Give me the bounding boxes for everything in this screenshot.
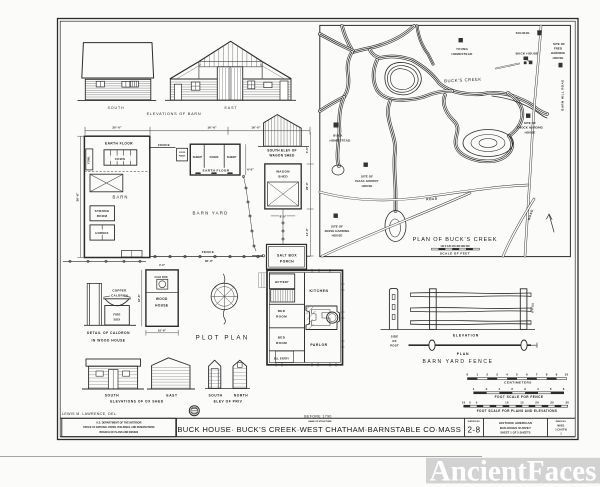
svg-text:SITE OF: SITE OF — [331, 224, 343, 228]
svg-text:EARTH FLOOR: EARTH FLOOR — [203, 169, 230, 173]
svg-text:10: 10 — [462, 401, 466, 405]
svg-text:BED: BED — [278, 336, 286, 340]
svg-text:SITE OF: SITE OF — [524, 121, 536, 125]
svg-text:ELEV OF PRIV: ELEV OF PRIV — [214, 400, 243, 404]
svg-text:HOUSE: HOUSE — [362, 184, 373, 188]
svg-text:7: 7 — [536, 373, 538, 377]
svg-text:14′-0″: 14′-0″ — [305, 227, 309, 236]
svg-text:AncientFaces: AncientFaces — [430, 455, 597, 487]
svg-text:OFFICE OF NATIONAL PARKS, BUIL: OFFICE OF NATIONAL PARKS, BUILDINGS, AND… — [83, 426, 155, 429]
svg-text:SHED: SHED — [278, 175, 288, 179]
svg-text:MASS.: MASS. — [557, 424, 565, 427]
svg-text:POST: POST — [390, 344, 399, 348]
svg-text:ELEVATIONS OF OX SHED: ELEVATIONS OF OX SHED — [110, 400, 163, 404]
svg-text:0: 0 — [467, 373, 469, 377]
svg-text:CALD RON: CALD RON — [155, 276, 168, 279]
svg-text:4: 4 — [537, 387, 539, 391]
svg-text:5: 5 — [516, 373, 518, 377]
svg-text:HOUSE: HOUSE — [332, 234, 343, 238]
svg-text:15: 15 — [520, 401, 524, 405]
svg-text:10′-6″: 10′-6″ — [158, 328, 167, 332]
svg-text:0: 0 — [486, 387, 488, 391]
svg-text:BUILDINGS SURVEY: BUILDINGS SURVEY — [500, 426, 531, 430]
svg-text:BARN YARD: BARN YARD — [192, 211, 228, 216]
svg-text:ENOCK HARDING: ENOCK HARDING — [517, 126, 544, 130]
svg-text:6′-0″(±): 6′-0″(±) — [531, 303, 535, 313]
svg-text:OXEN: OXEN — [210, 155, 219, 159]
svg-text:ELEVATION: ELEVATION — [453, 334, 479, 338]
svg-text:2: 2 — [486, 373, 488, 377]
svg-text:ROOM: ROOM — [276, 314, 287, 318]
svg-text:1-CH AT W: 1-CH AT W — [555, 429, 567, 432]
svg-text:PLOT PLAN: PLOT PLAN — [196, 335, 250, 342]
svg-text:3: 3 — [524, 387, 526, 391]
svg-text:28′-0″: 28′-0″ — [305, 181, 309, 190]
svg-text:ELL ENTRY: ELL ENTRY — [274, 356, 289, 360]
svg-text:5: 5 — [550, 387, 552, 391]
svg-text:STRONG: STRONG — [95, 209, 110, 213]
svg-text:SALT BOX: SALT BOX — [277, 253, 297, 257]
svg-text:FOOT SCALE FOR FENCE: FOOT SCALE FOR FENCE — [495, 395, 544, 399]
svg-text:COPPER: COPPER — [112, 289, 127, 293]
svg-text:U.S. DEPARTMENT OF THE INTERIO: U.S. DEPARTMENT OF THE INTERIOR — [96, 421, 141, 424]
svg-text:WOOD: WOOD — [156, 297, 168, 301]
svg-text:30: 30 — [565, 401, 569, 405]
svg-text:FOWL: FOWL — [87, 156, 90, 164]
svg-text:6: 6 — [563, 387, 565, 391]
svg-text:FIRE: FIRE — [113, 313, 120, 317]
svg-text:25: 25 — [550, 401, 554, 405]
svg-text:PORCH: PORCH — [280, 259, 294, 263]
svg-text:PARLOR: PARLOR — [310, 343, 327, 347]
svg-text:16′-6″: 16′-6″ — [137, 293, 141, 302]
svg-text:WAGON: WAGON — [276, 170, 290, 174]
svg-text:HISTORIC AMERICAN: HISTORIC AMERICAN — [499, 421, 532, 425]
svg-text:36′-6″: 36′-6″ — [76, 192, 80, 201]
svg-text:FENCE: FENCE — [158, 143, 170, 147]
svg-text:SOUTH: SOUTH — [107, 106, 124, 110]
svg-text:BARN: BARN — [112, 194, 128, 199]
svg-text:BRANCH OF PLANS AND DESIGN: BRANCH OF PLANS AND DESIGN — [99, 431, 138, 434]
svg-text:CALDRON: CALDRON — [111, 294, 128, 298]
svg-text:SCALE OF FEET: SCALE OF FEET — [440, 251, 470, 255]
svg-text:BEFORE 1790: BEFORE 1790 — [304, 414, 332, 418]
svg-text:3′-0″: 3′-0″ — [305, 146, 309, 153]
svg-text:PLAN: PLAN — [457, 352, 469, 356]
svg-text:SCHOOL: SCHOOL — [516, 31, 531, 35]
svg-text:20: 20 — [535, 401, 539, 405]
svg-text:ROOM: ROOM — [276, 341, 287, 345]
svg-text:DETAIL OF CALDRON: DETAIL OF CALDRON — [87, 331, 130, 335]
svg-text:BARN HILL ROAD: BARN HILL ROAD — [561, 79, 565, 111]
svg-text:ROAD: ROAD — [426, 197, 438, 202]
svg-text:SOUTH: SOUTH — [208, 394, 222, 398]
svg-text:SHEEP: SHEEP — [193, 155, 203, 159]
svg-text:JESSE HARDING: JESSE HARDING — [325, 229, 351, 233]
svg-text:20′-0″: 20′-0″ — [112, 125, 122, 129]
svg-text:PAINT: PAINT — [179, 154, 186, 157]
svg-text:CENTIMETERS: CENTIMETERS — [504, 381, 532, 385]
svg-text:5: 5 — [469, 401, 471, 405]
svg-text:ELEVATIONS OF BARN: ELEVATIONS OF BARN — [147, 112, 202, 116]
svg-text:10: 10 — [565, 373, 569, 377]
svg-text:BARN YARD FENCE: BARN YARD FENCE — [422, 359, 493, 365]
svg-text:16′-0″: 16′-0″ — [251, 125, 261, 129]
svg-text:EAST: EAST — [166, 394, 177, 398]
svg-text:BUCK HOUSE: BUCK HOUSE — [516, 51, 539, 55]
svg-text:10: 10 — [505, 401, 509, 405]
svg-text:SIDE: SIDE — [391, 334, 399, 338]
svg-text:2: 2 — [511, 387, 513, 391]
svg-text:BUCK: BUCK — [333, 134, 343, 138]
svg-text:WAGON SHED: WAGON SHED — [269, 154, 295, 158]
svg-text:6: 6 — [526, 373, 528, 377]
svg-text:1: 1 — [476, 373, 478, 377]
svg-text:FRED: FRED — [554, 47, 562, 51]
svg-text:ROOM: ROOM — [97, 214, 108, 218]
svg-text:6′-0″: 6′-0″ — [247, 168, 254, 172]
svg-text:SITE OF: SITE OF — [361, 175, 373, 179]
svg-text:SITE OF: SITE OF — [553, 42, 565, 46]
svg-text:SOUTH: SOUTH — [105, 394, 120, 398]
svg-text:9: 9 — [556, 373, 558, 377]
svg-text:COVD: COVD — [179, 152, 186, 154]
svg-text:EAST: EAST — [225, 106, 238, 110]
svg-text:1: 1 — [498, 387, 500, 391]
svg-text:2-8: 2-8 — [467, 426, 480, 435]
svg-text:SURVEY NO.: SURVEY NO. — [468, 421, 481, 423]
svg-text:IN WOOD HOUSE: IN WOOD HOUSE — [92, 338, 126, 342]
svg-text:3: 3 — [496, 373, 498, 377]
svg-text:BUTTERY: BUTTERY — [275, 280, 289, 284]
svg-text:LEWIS M. LAWRENCE, DEL.: LEWIS M. LAWRENCE, DEL. — [62, 412, 117, 416]
svg-text:HOMESTEAD: HOMESTEAD — [452, 52, 474, 56]
svg-text:120 0 120 240 360 480 600: 120 0 120 240 360 480 600 — [440, 245, 470, 248]
svg-text:YOUNG: YOUNG — [456, 47, 468, 51]
svg-text:HORSES: HORSES — [95, 231, 108, 235]
svg-text:4′-0″: 4′-0″ — [159, 263, 166, 267]
svg-text:NORTH: NORTH — [234, 394, 248, 398]
svg-text:PLAN OF BUCK’S CREEK: PLAN OF BUCK’S CREEK — [413, 237, 498, 243]
svg-text:BED: BED — [278, 309, 286, 313]
svg-text:HOUSE: HOUSE — [553, 56, 564, 60]
svg-text:SHEEP: SHEEP — [227, 155, 237, 159]
svg-text:ISAAC GODFRY: ISAAC GODFRY — [355, 179, 378, 183]
svg-text:FOOT SCALE FOR PLANS AND ELEVA: FOOT SCALE FOR PLANS AND ELEVATIONS — [477, 409, 558, 413]
svg-text:·BUCK HOUSE· BUCK’S CREEK·WEST: ·BUCK HOUSE· BUCK’S CREEK·WEST CHATHAM·B… — [175, 425, 467, 434]
svg-text:SHEET 1 OF 5 SHEETS: SHEET 1 OF 5 SHEETS — [500, 431, 530, 435]
svg-text:FENCE: FENCE — [202, 250, 215, 254]
svg-text:8: 8 — [546, 373, 548, 377]
svg-text:1: 1 — [473, 387, 475, 391]
svg-text:HOUSE: HOUSE — [155, 304, 168, 308]
svg-text:KITCHEN: KITCHEN — [310, 289, 329, 293]
svg-text:0: 0 — [476, 401, 478, 405]
svg-text:HOUSE: HOUSE — [525, 130, 536, 134]
svg-text:INDEX NO.: INDEX NO. — [556, 421, 567, 423]
svg-text:HARDING: HARDING — [551, 51, 566, 55]
svg-text:COWS: COWS — [115, 157, 126, 161]
svg-text:BOX: BOX — [114, 317, 121, 321]
svg-text:EARTH FLOOR: EARTH FLOOR — [105, 142, 133, 146]
svg-text:OF: OF — [392, 339, 396, 343]
svg-text:16′-6″: 16′-6″ — [207, 125, 217, 129]
svg-text:SOUTH ELEV OF: SOUTH ELEV OF — [267, 149, 297, 153]
svg-text:36′-0″: 36′-0″ — [205, 259, 214, 263]
svg-text:4: 4 — [506, 373, 508, 377]
svg-text:HOMESTEAD: HOMESTEAD — [330, 138, 352, 142]
svg-text:NAME OF STRUCTURE: NAME OF STRUCTURE — [309, 420, 333, 423]
